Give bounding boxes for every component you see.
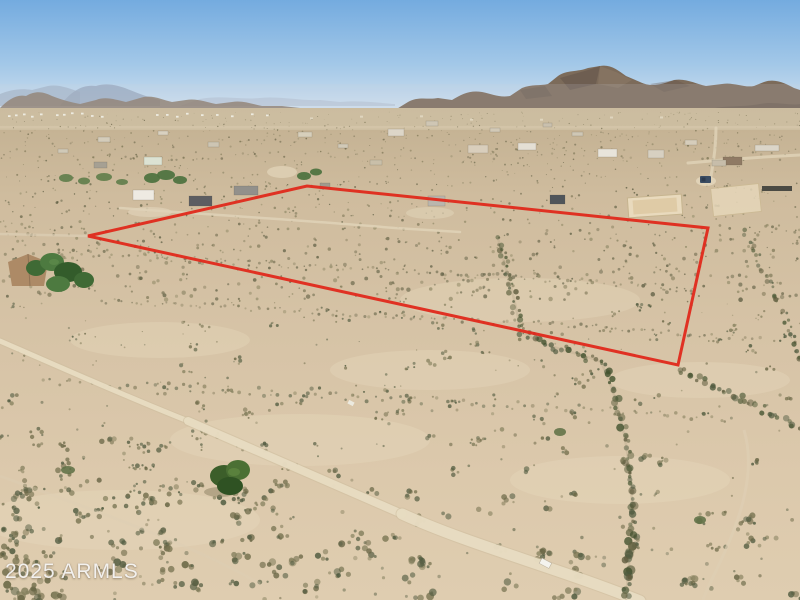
distant-road: [0, 126, 800, 129]
aerial-photo: 2025 ARMLS: [0, 0, 800, 600]
watermark: 2025 ARMLS: [5, 560, 139, 584]
aerial-photo-scene: [0, 0, 800, 600]
